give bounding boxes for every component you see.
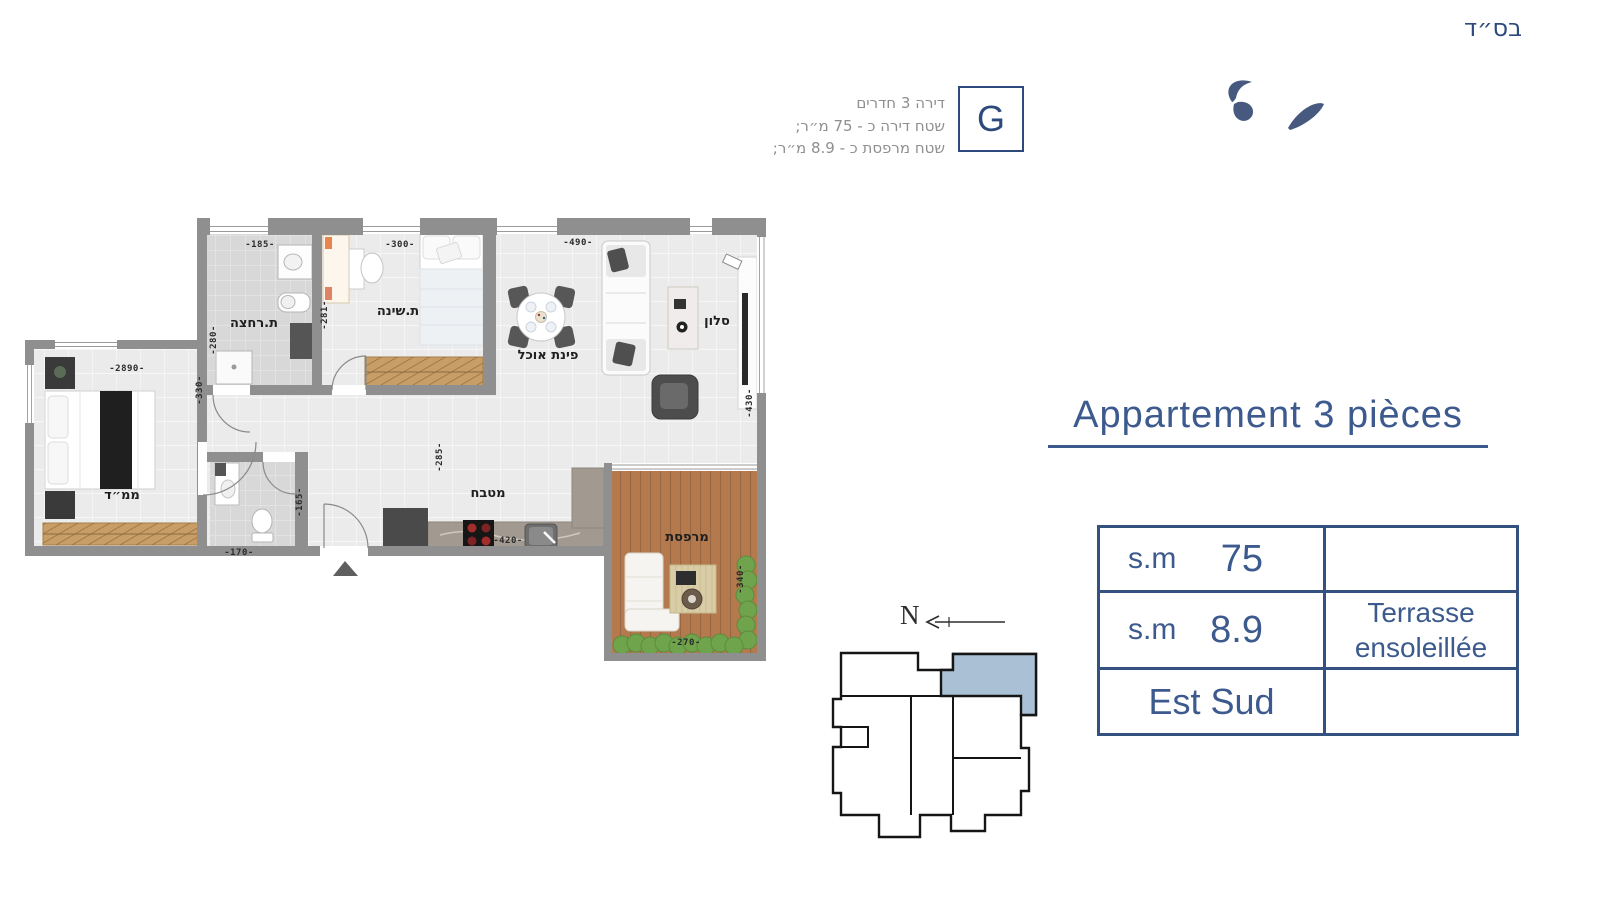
dim-label: -300- bbox=[385, 240, 415, 250]
entry-arrow bbox=[333, 561, 358, 576]
unit-info-line-1: דירה 3 חדרים bbox=[773, 92, 945, 115]
dim-label: -330- bbox=[195, 375, 205, 405]
table-row: s.m 75 bbox=[1099, 527, 1518, 592]
window bbox=[25, 365, 34, 423]
room-label-dining: פינת אוכל bbox=[518, 348, 579, 363]
dim-label: -340- bbox=[736, 564, 746, 594]
armchair bbox=[652, 375, 698, 419]
coffee-table bbox=[668, 287, 698, 349]
unit-label: s.m bbox=[1128, 613, 1176, 647]
bed-double bbox=[45, 391, 155, 489]
room-label-balcony: מרפסת bbox=[665, 530, 709, 545]
floor-plan: -185- -300- -490- -280- -281- -330- -289… bbox=[20, 205, 770, 680]
toilet bbox=[252, 509, 273, 542]
cabinet bbox=[215, 463, 226, 476]
wardrobe bbox=[365, 357, 483, 387]
unit-info-block: דירה 3 חדרים שטח דירה כ - 75 מ״ר; שטח מר… bbox=[773, 92, 945, 160]
dim-label: -2890- bbox=[109, 364, 145, 374]
spec-table: s.m 75 s.m 8.9 Terrasse ensoleillée Est … bbox=[1097, 525, 1519, 736]
room-label-living: סלון bbox=[704, 314, 730, 329]
area-value: 75 bbox=[1221, 538, 1263, 581]
window bbox=[55, 340, 117, 349]
bsd-text: בס״ד bbox=[1464, 14, 1522, 42]
window bbox=[690, 224, 712, 234]
dim-label: -281- bbox=[320, 300, 330, 330]
unit-info-line-2: שטח דירה כ - 75 מ״ר; bbox=[773, 115, 945, 138]
bird-icon bbox=[1228, 80, 1253, 120]
table-row: s.m 8.9 Terrasse ensoleillée bbox=[1099, 592, 1518, 669]
bird-icon bbox=[1288, 103, 1324, 130]
unit-label: s.m bbox=[1128, 542, 1176, 576]
dim-label: -420- bbox=[493, 536, 523, 546]
apartment-title: Appartement 3 pièces bbox=[1048, 394, 1488, 448]
unit-letter: G bbox=[977, 98, 1005, 140]
dim-label: -430- bbox=[745, 388, 755, 418]
tv bbox=[742, 293, 748, 385]
kitchen-sink bbox=[525, 524, 557, 548]
room-label-safe-room: ממ״ד bbox=[104, 488, 140, 503]
note-cell bbox=[1325, 669, 1518, 735]
room-label-kitchen: מטבח bbox=[470, 486, 505, 501]
wardrobe bbox=[43, 523, 200, 545]
table-row: Est Sud bbox=[1099, 669, 1518, 735]
area-value: 8.9 bbox=[1210, 609, 1263, 652]
north-arrow-icon bbox=[925, 612, 1010, 632]
area-cell: s.m 8.9 bbox=[1100, 609, 1323, 652]
dim-label: -285- bbox=[435, 442, 445, 472]
building-keyplan bbox=[823, 643, 1038, 843]
dim-label: -280- bbox=[209, 325, 219, 355]
desk-chair bbox=[361, 253, 383, 283]
note-cell bbox=[1325, 527, 1518, 592]
window bbox=[210, 224, 268, 234]
orientation-cell: Est Sud bbox=[1100, 681, 1323, 723]
dim-label: -165- bbox=[295, 487, 305, 517]
window bbox=[497, 224, 557, 234]
area-cell: s.m 75 bbox=[1100, 538, 1323, 581]
window bbox=[363, 224, 420, 234]
bed-single bbox=[420, 233, 483, 345]
orientation-value: Est Sud bbox=[1148, 681, 1274, 723]
sofa bbox=[602, 241, 650, 375]
note-cell: Terrasse ensoleillée bbox=[1325, 592, 1518, 669]
balcony-glass-wall bbox=[612, 463, 757, 471]
unit-letter-box: G bbox=[958, 86, 1024, 152]
stove bbox=[463, 520, 494, 548]
dim-label: -170- bbox=[224, 548, 254, 558]
room-label-bedroom: ת.שינה bbox=[377, 304, 419, 319]
dim-label: -270- bbox=[671, 638, 701, 648]
room-label-bathroom: ת.רחצה bbox=[230, 316, 278, 331]
outdoor-rug bbox=[670, 565, 716, 613]
dim-label: -490- bbox=[563, 238, 593, 248]
bath-cabinet bbox=[290, 323, 312, 359]
north-label: N bbox=[900, 600, 920, 631]
unit-info-line-3: שטח מרפסת כ - 8.9 מ״ר; bbox=[773, 137, 945, 160]
nightstand bbox=[45, 491, 75, 519]
window bbox=[757, 237, 766, 393]
tv-console bbox=[738, 257, 757, 409]
tray bbox=[676, 571, 696, 585]
kitchen-cabinet bbox=[383, 508, 428, 546]
dim-label: -185- bbox=[245, 240, 275, 250]
page: בס״ד דירה 3 חדרים שטח דירה כ - 75 מ״ר; ש… bbox=[0, 0, 1600, 900]
birds-logo bbox=[1218, 74, 1330, 140]
